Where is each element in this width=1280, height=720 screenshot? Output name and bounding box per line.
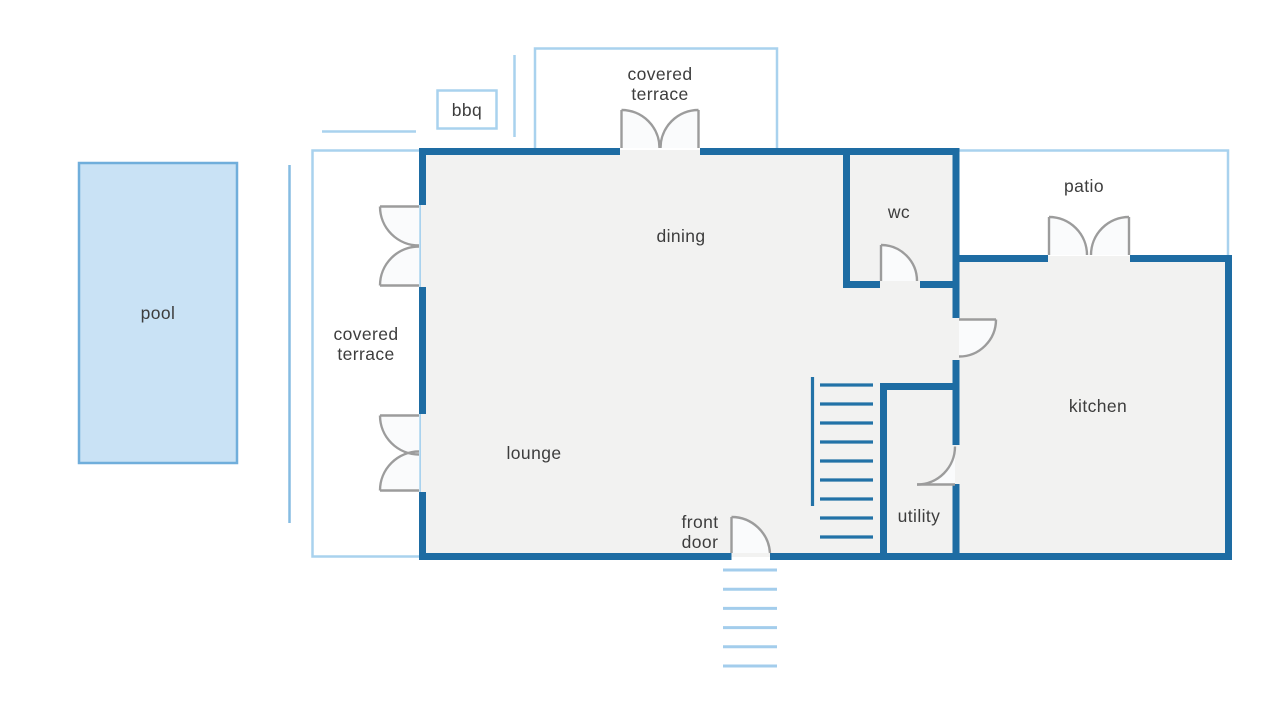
front-door-label-line2: door bbox=[682, 532, 719, 552]
floor-plan-svg: pool covered terrace covered terrace bbq… bbox=[0, 0, 1280, 720]
covered-terrace-left-label-line2: terrace bbox=[337, 344, 394, 364]
patio-label: patio bbox=[1064, 176, 1104, 196]
bbq-label: bbq bbox=[452, 100, 482, 120]
front-steps bbox=[723, 570, 777, 666]
patio-area bbox=[956, 151, 1229, 258]
kitchen-label: kitchen bbox=[1069, 396, 1127, 416]
pool-label: pool bbox=[141, 303, 176, 323]
covered-terrace-top-label-line1: covered bbox=[627, 64, 692, 84]
covered-terrace-top-label-line2: terrace bbox=[631, 84, 688, 104]
main-floor bbox=[421, 150, 956, 557]
covered-terrace-left-label-line1: covered bbox=[333, 324, 398, 344]
lounge-label: lounge bbox=[507, 443, 562, 463]
utility-label: utility bbox=[898, 506, 941, 526]
dining-label: dining bbox=[656, 226, 705, 246]
floor-plan-canvas: pool covered terrace covered terrace bbq… bbox=[0, 0, 1280, 720]
wc-label: wc bbox=[887, 202, 910, 222]
front-door-label-line1: front bbox=[681, 512, 718, 532]
